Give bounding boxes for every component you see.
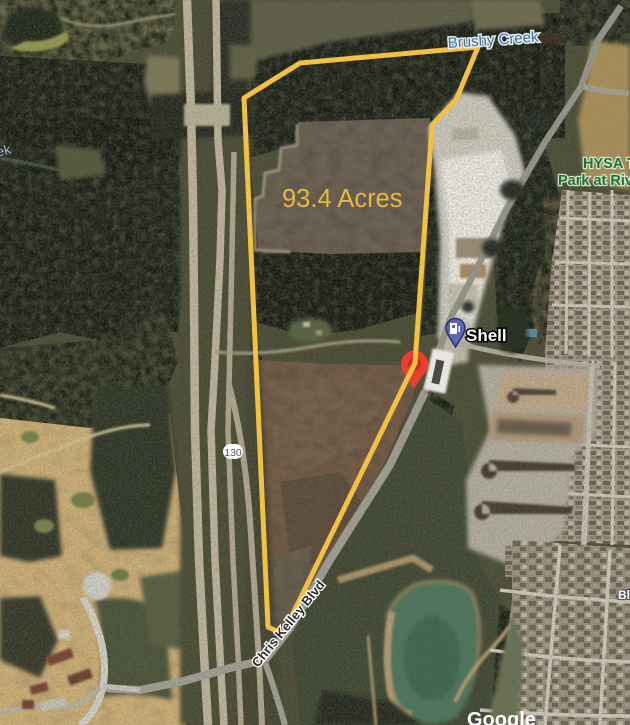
svg-text:Shell: Shell bbox=[466, 326, 507, 345]
svg-text:Park at Riv: Park at Riv bbox=[558, 173, 630, 189]
svg-text:HYSA T: HYSA T bbox=[583, 156, 630, 172]
svg-text:93.4 Acres: 93.4 Acres bbox=[282, 185, 403, 213]
svg-text:Bl: Bl bbox=[618, 588, 630, 602]
svg-text:Google: Google bbox=[467, 709, 536, 725]
svg-text:130: 130 bbox=[224, 447, 242, 459]
